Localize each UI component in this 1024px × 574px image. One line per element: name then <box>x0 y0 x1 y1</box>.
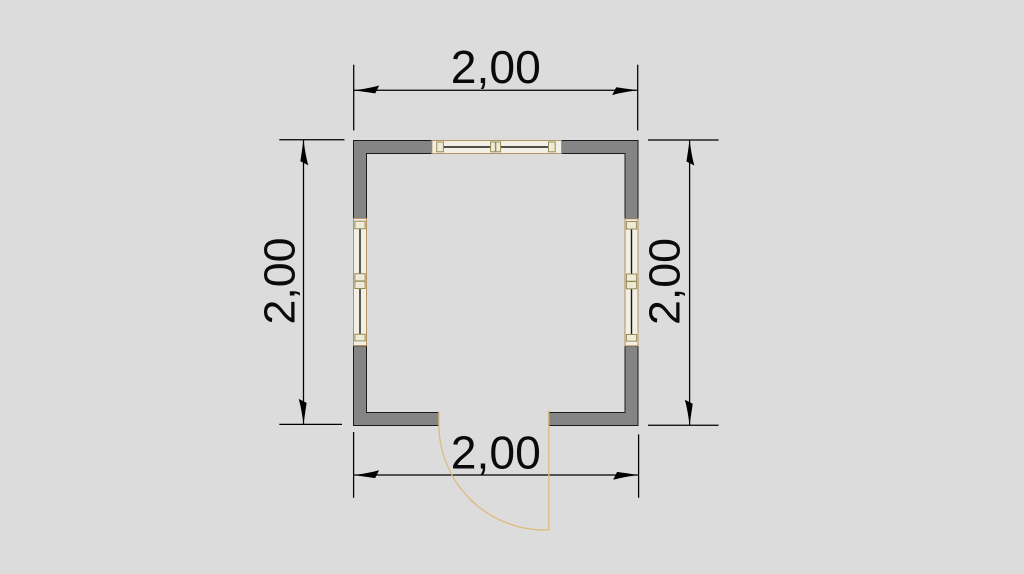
svg-text:2,00: 2,00 <box>451 427 541 479</box>
svg-text:2,00: 2,00 <box>256 238 305 325</box>
svg-text:2,00: 2,00 <box>641 238 690 325</box>
svg-text:2,00: 2,00 <box>451 41 541 93</box>
